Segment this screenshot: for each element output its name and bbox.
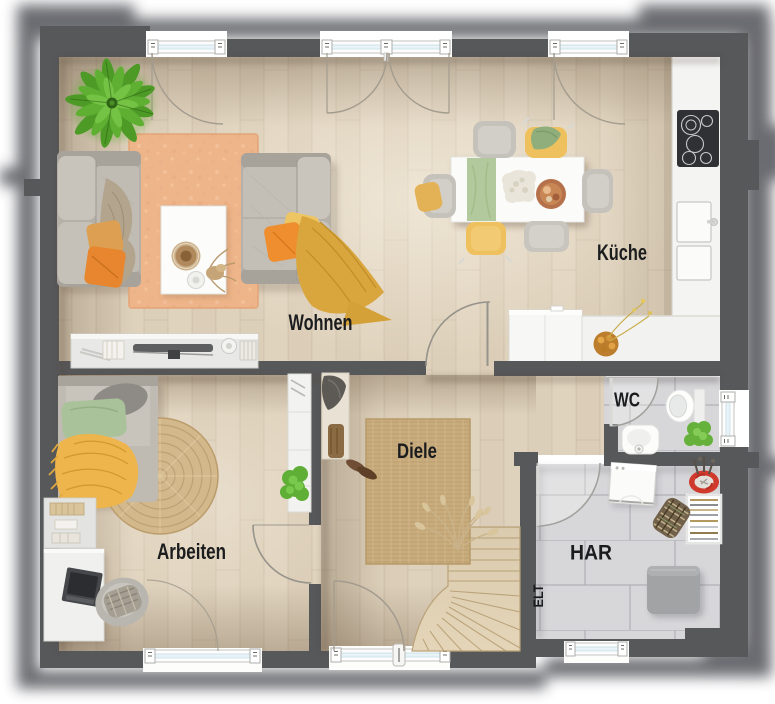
- svg-text:HAR: HAR: [570, 541, 612, 565]
- svg-text:WC: WC: [614, 390, 640, 412]
- svg-text:ELT: ELT: [531, 584, 546, 608]
- svg-text:Küche: Küche: [597, 240, 647, 265]
- svg-text:Diele: Diele: [397, 440, 437, 463]
- svg-text:Wohnen: Wohnen: [289, 310, 353, 335]
- svg-text:Arbeiten: Arbeiten: [157, 539, 226, 564]
